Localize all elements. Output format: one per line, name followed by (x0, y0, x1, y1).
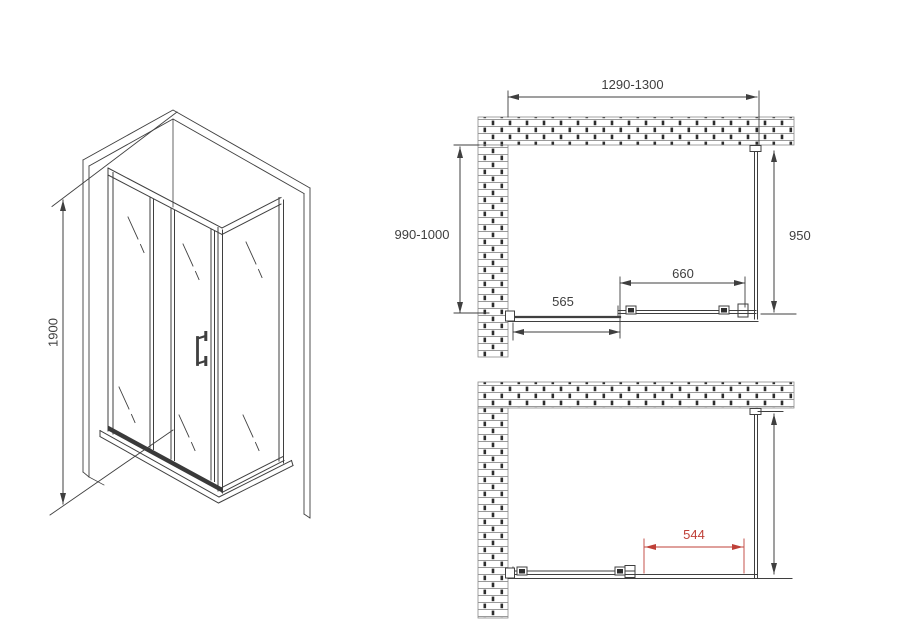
arrow-left-icon (645, 544, 656, 550)
door-assembly-closed (506, 304, 759, 322)
side-glass-panel (750, 409, 761, 579)
shower-tray (100, 426, 293, 504)
technical-drawing: 1900 1290-1300 990-1000 (0, 0, 900, 636)
arrow-down-icon (771, 301, 777, 312)
arrow-right-icon (732, 544, 743, 550)
top-plan-view: 1290-1300 990-1000 950 (395, 77, 811, 357)
dim-overall-width-label: 1290-1300 (601, 77, 663, 92)
dim-door-width-label: 660 (672, 266, 694, 281)
brick-wall-left (478, 145, 508, 357)
dim-height-label: 1900 (46, 318, 61, 347)
drawing-canvas: 1900 1290-1300 990-1000 (0, 0, 900, 636)
door-handle (198, 333, 206, 365)
arrow-right-icon (746, 94, 757, 100)
wall-bracket (750, 146, 761, 152)
arrow-left-icon (508, 94, 519, 100)
dim-side-panel-label: 950 (789, 228, 811, 243)
arrow-down-icon (457, 302, 463, 313)
arrow-right-icon (609, 329, 620, 335)
dim-depth-label: 990-1000 (395, 227, 450, 242)
dimension-side-unlabeled (758, 412, 783, 575)
isometric-view: 1900 (46, 110, 311, 518)
dimension-door-width: 660 (620, 266, 745, 338)
bottom-plan-view: 544 (478, 382, 794, 618)
arrow-up-icon (457, 147, 463, 158)
arrow-right-icon (734, 280, 745, 286)
brick-wall-top (478, 382, 794, 408)
brick-wall-left (478, 408, 508, 618)
glass-marks (119, 217, 262, 451)
side-glass-panel (750, 146, 761, 320)
arrow-up-icon (771, 414, 777, 425)
arrow-up-icon (60, 200, 66, 211)
arrow-down-icon (771, 563, 777, 574)
dimension-side-panel: 950 (761, 151, 811, 314)
wall-bracket (506, 311, 515, 321)
arrow-up-icon (771, 151, 777, 162)
arrow-left-icon (513, 329, 524, 335)
dimension-opening-red: 544 (644, 527, 744, 573)
arrow-down-icon (60, 493, 66, 504)
dim-opening-width-label: 544 (683, 527, 705, 542)
room-wall-panels (83, 110, 310, 518)
brick-wall-top (478, 117, 794, 145)
door-assembly-open (506, 566, 793, 579)
arrow-left-icon (620, 280, 631, 286)
dimension-depth: 990-1000 (395, 145, 489, 313)
dim-fixed-panel-label: 565 (552, 294, 574, 309)
wall-bracket (506, 568, 515, 578)
